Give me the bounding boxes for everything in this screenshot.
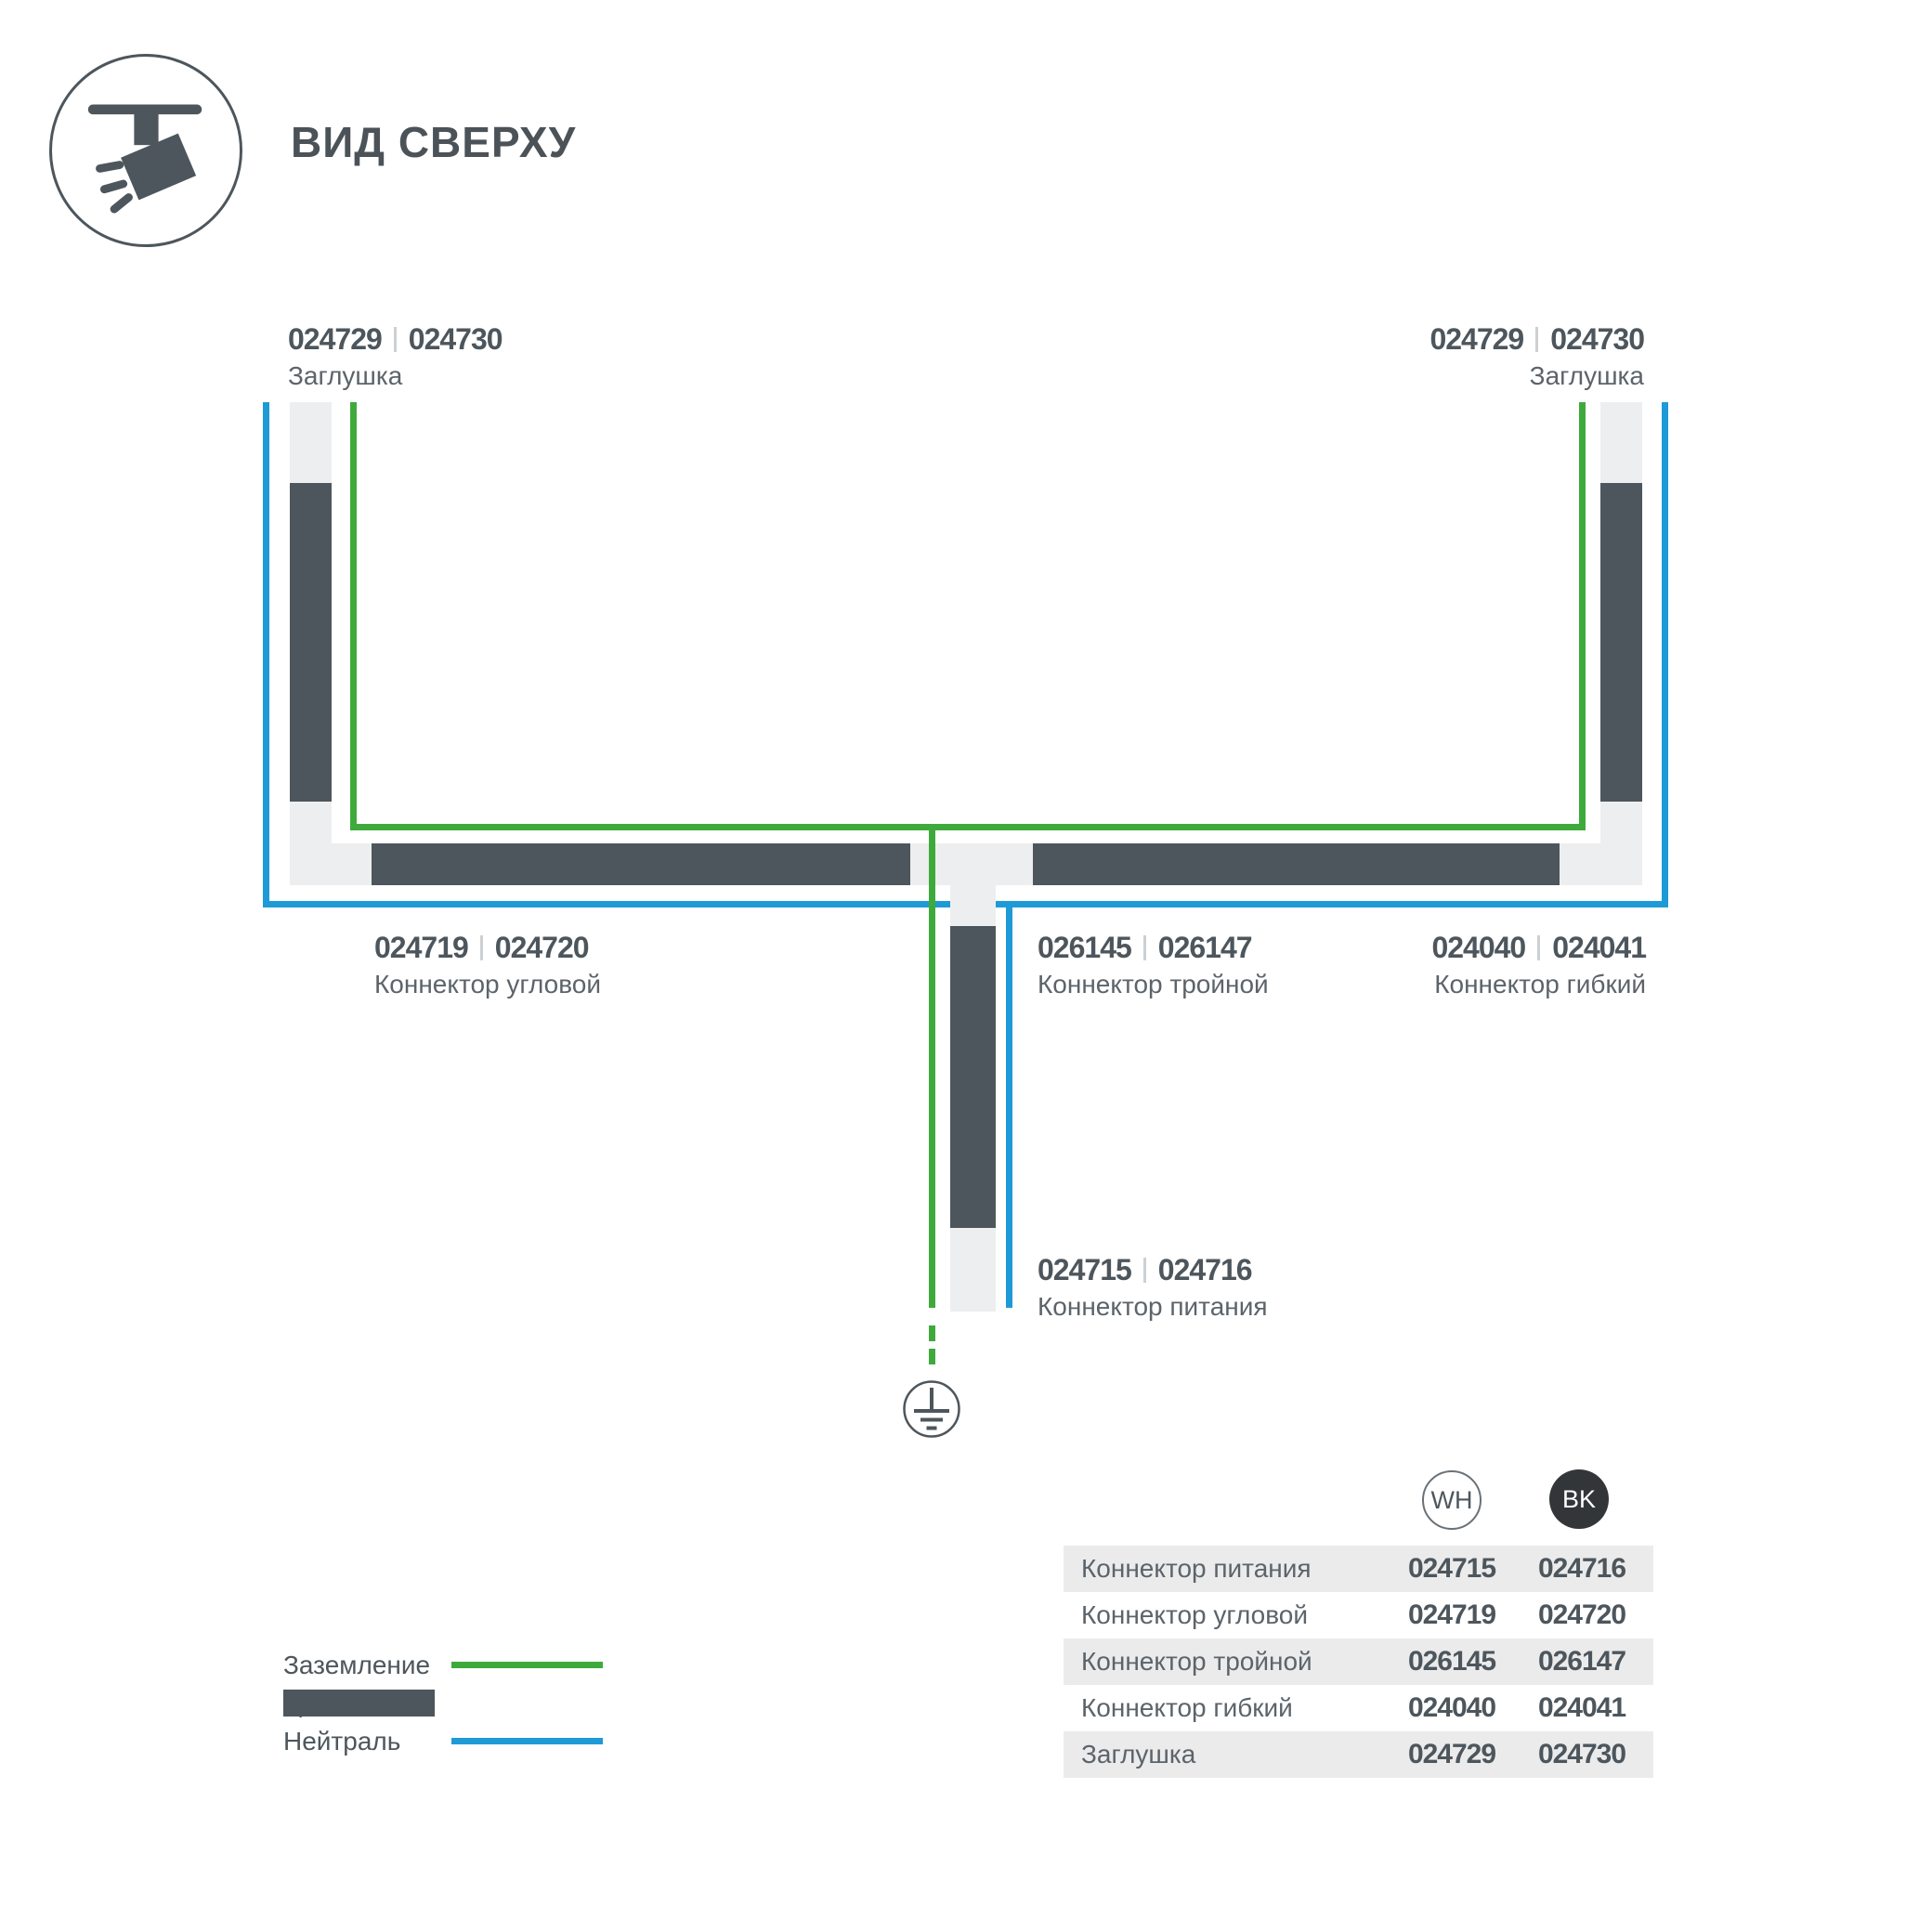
code-divider	[1535, 327, 1538, 352]
table-row: Коннектор гибкий 024040 024041	[1064, 1685, 1653, 1731]
part-codes: 024715 024716	[1038, 1255, 1268, 1285]
table-row-label: Коннектор питания	[1064, 1554, 1387, 1584]
track-segment-bottom-right	[1033, 843, 1560, 885]
corner-connector-left-horizontal-arm	[290, 843, 372, 885]
table-row: Коннектор тройной 026145 026147	[1064, 1638, 1653, 1685]
end-cap-left	[290, 402, 332, 483]
column-badge-white: WH	[1422, 1470, 1482, 1530]
power-connector-body	[950, 1228, 996, 1312]
part-name: Коннектор тройной	[1038, 971, 1269, 999]
part-code-bk: 026147	[1158, 933, 1252, 962]
table-row-bk-code: 026147	[1517, 1646, 1647, 1677]
ground-wire-dash-2	[929, 1349, 935, 1364]
label-power-connector: 024715 024716 Коннектор питания	[1038, 1255, 1268, 1322]
part-code-wh: 024715	[1038, 1255, 1131, 1285]
code-divider	[480, 935, 483, 960]
table-row-wh-code: 024715	[1387, 1553, 1517, 1585]
track-segment-stem	[950, 926, 996, 1228]
table-row: Коннектор питания 024715 024716	[1064, 1546, 1653, 1592]
part-code-bk: 024720	[495, 933, 589, 962]
track-segment-bottom-left	[372, 843, 910, 885]
table-row-wh-code: 024040	[1387, 1692, 1517, 1724]
top-view-diagram-page: ВИД СВЕРХУ 024729 024730	[0, 0, 1932, 1932]
table-row-bk-code: 024716	[1517, 1553, 1647, 1585]
earth-ground-icon	[902, 1379, 961, 1439]
part-code-wh: 024719	[374, 933, 468, 962]
legend: Заземление Трек Нейтраль	[283, 1646, 603, 1760]
column-badge-black: BK	[1549, 1469, 1609, 1529]
legend-swatch-track-bar	[283, 1690, 435, 1717]
neutral-wire-stem-vertical	[1006, 907, 1012, 1308]
part-codes: 024719 024720	[374, 933, 601, 962]
track-spotlight-icon	[49, 54, 242, 247]
part-name: Коннектор питания	[1038, 1293, 1268, 1322]
table-row-wh-code: 024729	[1387, 1739, 1517, 1770]
part-code-wh: 024040	[1431, 933, 1525, 962]
label-corner-connector: 024719 024720 Коннектор угловой	[374, 933, 601, 999]
label-end-cap-right: 024729 024730 Заглушка	[1429, 324, 1644, 391]
code-divider	[1537, 935, 1540, 960]
ground-wire-stem-vertical	[929, 830, 935, 1308]
part-codes: 024040 024041	[1431, 933, 1646, 962]
part-codes: 024729 024730	[288, 324, 503, 354]
page-title: ВИД СВЕРХУ	[291, 117, 576, 167]
table-row-bk-code: 024730	[1517, 1739, 1647, 1770]
ground-wire-left-vertical	[350, 402, 357, 830]
part-code-bk: 024041	[1552, 933, 1646, 962]
part-name: Заглушка	[288, 362, 503, 391]
table-row: Коннектор угловой 024719 024720	[1064, 1592, 1653, 1638]
ground-wire-horizontal	[350, 824, 1586, 830]
triple-connector-stem-arm	[950, 885, 996, 926]
table-row-label: Коннектор гибкий	[1064, 1693, 1387, 1723]
legend-label-ground: Заземление	[283, 1651, 451, 1680]
table-row-bk-code: 024041	[1517, 1692, 1647, 1724]
code-divider	[1143, 1258, 1146, 1283]
table-row-label: Коннектор тройной	[1064, 1647, 1387, 1677]
part-code-wh: 024729	[288, 324, 382, 354]
ground-wire-dash-1	[929, 1325, 935, 1341]
neutral-wire-left-vertical	[263, 402, 269, 907]
label-flex-connector: 024040 024041 Коннектор гибкий	[1431, 933, 1646, 999]
code-divider	[1143, 935, 1146, 960]
end-cap-right	[1600, 402, 1642, 483]
part-name: Заглушка	[1429, 362, 1644, 391]
table-row-wh-code: 024719	[1387, 1599, 1517, 1631]
part-name: Коннектор угловой	[374, 971, 601, 999]
code-divider	[394, 327, 397, 352]
neutral-wire-right-vertical	[1662, 402, 1668, 907]
ground-wire-right-vertical	[1579, 402, 1586, 830]
part-codes: 024729 024730	[1429, 324, 1644, 354]
label-end-cap-left: 024729 024730 Заглушка	[288, 324, 503, 391]
table-row-label: Коннектор угловой	[1064, 1600, 1387, 1630]
table-row-wh-code: 026145	[1387, 1646, 1517, 1677]
legend-swatch-neutral-line	[451, 1738, 603, 1744]
parts-table: Коннектор питания 024715 024716 Коннекто…	[1064, 1546, 1653, 1778]
part-code-bk: 024716	[1158, 1255, 1252, 1285]
table-row-label: Заглушка	[1064, 1740, 1387, 1769]
part-code-wh: 024729	[1429, 324, 1523, 354]
table-row-bk-code: 024720	[1517, 1599, 1647, 1631]
flex-connector-vertical-arm	[1600, 802, 1642, 885]
legend-row-ground: Заземление	[283, 1646, 603, 1684]
legend-row-neutral: Нейтраль	[283, 1722, 603, 1760]
table-row: Заглушка 024729 024730	[1064, 1731, 1653, 1778]
part-name: Коннектор гибкий	[1431, 971, 1646, 999]
legend-label-neutral: Нейтраль	[283, 1727, 451, 1756]
part-code-bk: 024730	[1550, 324, 1644, 354]
track-segment-left	[290, 483, 332, 802]
label-triple-connector: 026145 026147 Коннектор тройной	[1038, 933, 1269, 999]
track-spotlight-glyph	[52, 57, 240, 244]
legend-swatch-ground-line	[451, 1662, 603, 1668]
part-code-wh: 026145	[1038, 933, 1131, 962]
legend-row-track: Трек	[283, 1684, 603, 1722]
part-codes: 026145 026147	[1038, 933, 1269, 962]
track-segment-right	[1600, 483, 1642, 802]
part-code-bk: 024730	[409, 324, 503, 354]
